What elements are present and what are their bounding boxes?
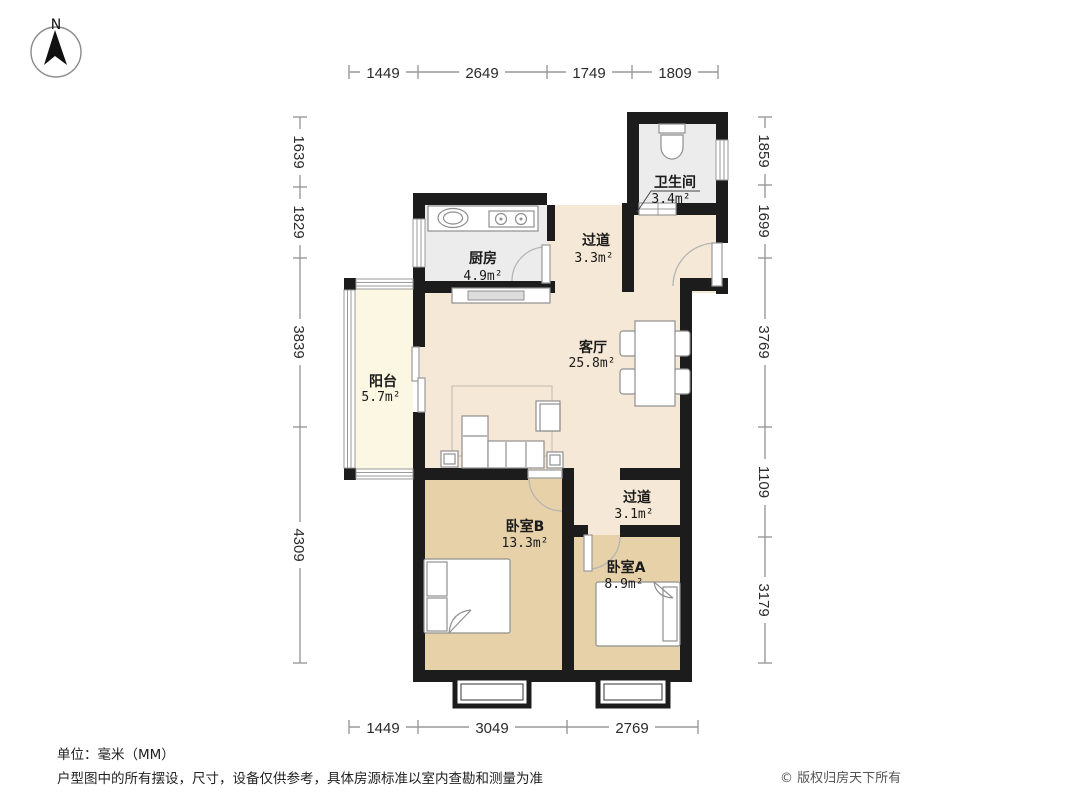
dim-label: 1449 xyxy=(366,720,399,737)
room-area-bedroom-a: 8.9m² xyxy=(604,577,643,592)
dim-label: 3049 xyxy=(475,720,508,737)
room-area-bathroom: 3.4m² xyxy=(651,192,690,207)
balcony-window-bottom xyxy=(356,469,413,479)
dimension-top: 1449 2649 1749 1809 xyxy=(349,63,718,82)
room-area-living: 25.8m² xyxy=(569,356,616,371)
bed-bedroom-b xyxy=(424,559,510,633)
unit-note: 单位：毫米（MM） xyxy=(57,743,175,763)
copyright-note: © 版权归房天下所有 xyxy=(780,767,901,786)
north-arrow-icon xyxy=(44,30,67,65)
room-label-hall-upper: 过道 xyxy=(582,232,610,249)
dim-label: 2649 xyxy=(465,65,498,82)
floor-plan-svg: N 1449 2649 1749 1809 1449 3049 2769 xyxy=(0,0,1066,800)
floor-plan-page: N 1449 2649 1749 1809 1449 3049 2769 xyxy=(0,0,1066,800)
room-area-hall-upper: 3.3m² xyxy=(574,251,613,266)
bay-window-bedroom-b xyxy=(455,678,529,706)
dim-label: 3769 xyxy=(755,325,772,358)
dim-label: 1449 xyxy=(366,65,399,82)
room-area-bedroom-b: 13.3m² xyxy=(502,536,549,551)
bathroom-window xyxy=(716,140,728,180)
room-area-kitchen: 4.9m² xyxy=(463,269,502,284)
dim-label: 1829 xyxy=(290,205,307,238)
dim-label: 3839 xyxy=(290,325,307,358)
bay-window-bedroom-a xyxy=(598,678,668,706)
room-label-bathroom: 卫生间 xyxy=(654,174,696,191)
dim-label: 1809 xyxy=(658,65,691,82)
room-label-balcony: 阳台 xyxy=(369,373,397,390)
dim-label: 4309 xyxy=(290,528,307,561)
room-label-bedroom-a: 卧室A xyxy=(607,559,646,576)
dim-label: 2769 xyxy=(615,720,648,737)
dim-label: 1699 xyxy=(755,204,772,237)
dim-label: 1639 xyxy=(290,135,307,168)
room-area-hall-lower: 3.1m² xyxy=(614,507,653,522)
end-table xyxy=(547,452,563,468)
balcony-window-left xyxy=(344,290,355,468)
dimension-bottom: 1449 3049 2769 xyxy=(349,718,698,737)
toilet-icon xyxy=(659,124,685,159)
room-label-bedroom-b: 卧室B xyxy=(506,518,545,535)
dimension-right: 1859 1699 3769 1109 3179 xyxy=(755,117,774,663)
room-label-living: 客厅 xyxy=(578,339,607,356)
disclaimer-note: 户型图中的所有摆设，尺寸，设备仅供参考，具体房源标准以室内查勘和测量为准 xyxy=(57,767,543,787)
room-label-kitchen: 厨房 xyxy=(469,250,497,267)
room-label-hall-lower: 过道 xyxy=(623,489,651,506)
hall-upper-floor xyxy=(547,205,622,293)
dimension-left: 1639 1829 3839 4309 xyxy=(290,117,309,663)
dim-label: 3179 xyxy=(755,583,772,616)
dim-label: 1749 xyxy=(572,65,605,82)
tv-cabinet xyxy=(536,401,560,431)
end-table xyxy=(441,451,458,467)
dim-label: 1109 xyxy=(755,466,772,498)
sideboard xyxy=(452,288,550,303)
room-area-balcony: 5.7m² xyxy=(361,390,400,405)
dim-label: 1859 xyxy=(755,134,772,167)
compass-label: N xyxy=(51,17,61,33)
compass: N xyxy=(31,17,81,77)
kitchen-counter xyxy=(428,206,538,231)
balcony-window-top xyxy=(356,279,413,289)
kitchen-window xyxy=(413,219,425,267)
